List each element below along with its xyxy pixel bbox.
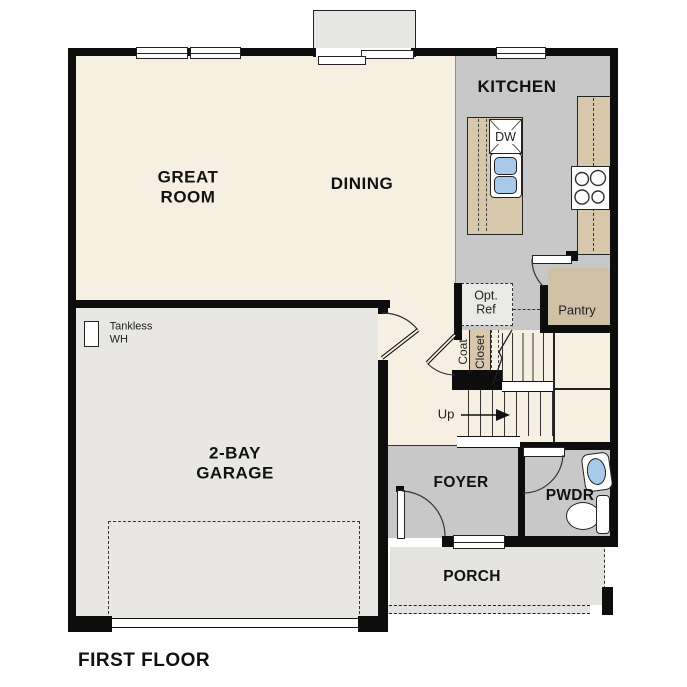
label-porch: PORCH (443, 568, 500, 586)
front-door-panel (397, 490, 405, 539)
label-powder: PWDR (546, 487, 595, 505)
porch-corner-post (602, 587, 613, 615)
wall-powder-left (518, 450, 525, 537)
stairs-bottom-edge (457, 436, 520, 448)
floor-plan: DW (0, 0, 687, 687)
kitchen-sink (490, 153, 522, 198)
wall-optref-post (454, 283, 462, 340)
stairs-upper-run (502, 333, 554, 382)
window-kitchen (496, 47, 546, 59)
toilet-tank (596, 495, 610, 534)
label-pantry: Pantry (558, 304, 596, 319)
label-tankless-wh: Tankless WH (110, 320, 153, 345)
kitchen-dining-boundary (455, 56, 456, 284)
wall-garage-right-lower (378, 360, 388, 632)
wall-left (68, 48, 76, 632)
plan-title: FIRST FLOOR (78, 650, 210, 672)
label-up: Up (438, 408, 455, 423)
label-kitchen: KITCHEN (477, 77, 556, 97)
label-coat: Coat (456, 339, 470, 364)
dishwasher: DW (489, 119, 522, 154)
sink-basin-top (494, 157, 517, 175)
label-opt-ref: Opt. Ref (474, 289, 498, 318)
powder-sink-basin (585, 457, 608, 486)
window-great-room-1 (136, 47, 188, 59)
wall-foyer-bottom-right (502, 536, 618, 547)
wall-pantry-bottom (540, 325, 618, 333)
label-garage: 2-BAY GARAGE (196, 443, 274, 482)
garage-corner-post-right (358, 616, 388, 632)
window-foyer-sidelite (453, 535, 505, 549)
dishwasher-label: DW (494, 130, 517, 144)
tankless-water-heater (84, 321, 99, 347)
label-great-room: GREAT ROOM (158, 167, 219, 206)
stairs-lower-run (457, 390, 553, 436)
garage-corner-post-left (68, 616, 112, 632)
wall-closet-bottom (452, 370, 502, 390)
sink-basin-bottom (494, 176, 517, 194)
stairs-stringer-right (553, 333, 555, 446)
stairs-landing-edge (502, 381, 553, 392)
pantry-door-panel (532, 255, 572, 264)
window-great-room-2 (190, 47, 241, 59)
label-foyer: FOYER (434, 474, 489, 492)
wall-garage-right-upper (378, 300, 388, 314)
garage-door-clearance (108, 521, 360, 619)
wall-garage-top (68, 300, 390, 308)
label-closet: Closet (473, 335, 487, 369)
island-counter-dashes (478, 119, 487, 231)
landing-line-right (553, 388, 610, 390)
toilet-bowl (566, 502, 600, 530)
sliding-door-panel-right (361, 50, 414, 59)
sliding-door-panel-left (318, 56, 366, 65)
stove (571, 166, 610, 210)
powder-door-panel (523, 447, 565, 457)
label-dining: DINING (331, 174, 394, 194)
pantry-counter-dash (513, 309, 540, 310)
porch-right-dashed-edge (604, 549, 605, 589)
garage-door (112, 618, 358, 628)
porch-step-edge (384, 605, 590, 614)
